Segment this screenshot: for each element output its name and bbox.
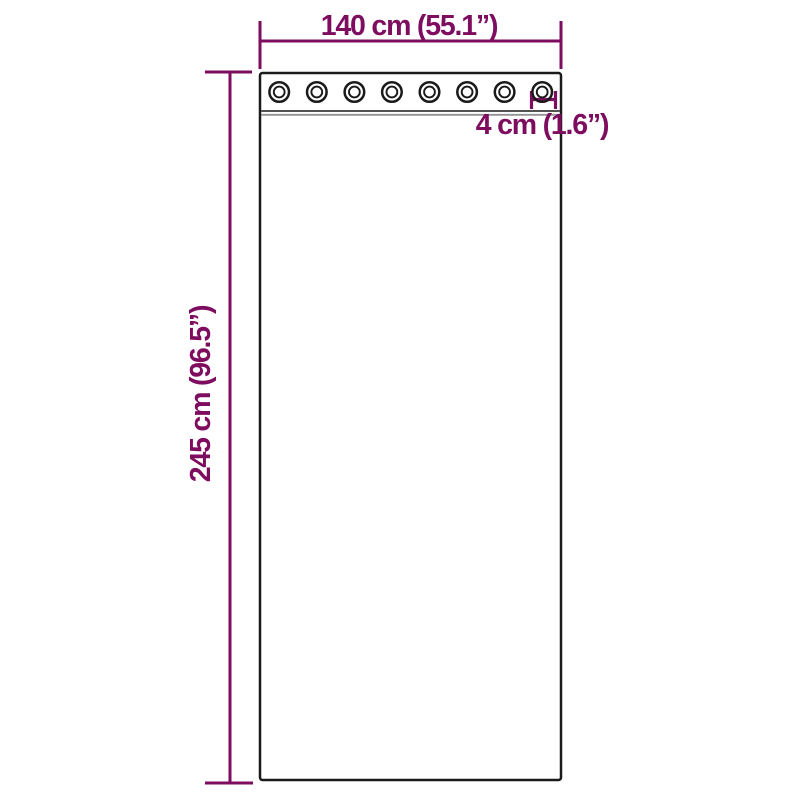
svg-text:245 cm (96.5”): 245 cm (96.5”): [185, 305, 217, 482]
svg-text:140 cm (55.1”): 140 cm (55.1”): [321, 10, 498, 42]
svg-text:4 cm (1.6”): 4 cm (1.6”): [476, 109, 609, 141]
